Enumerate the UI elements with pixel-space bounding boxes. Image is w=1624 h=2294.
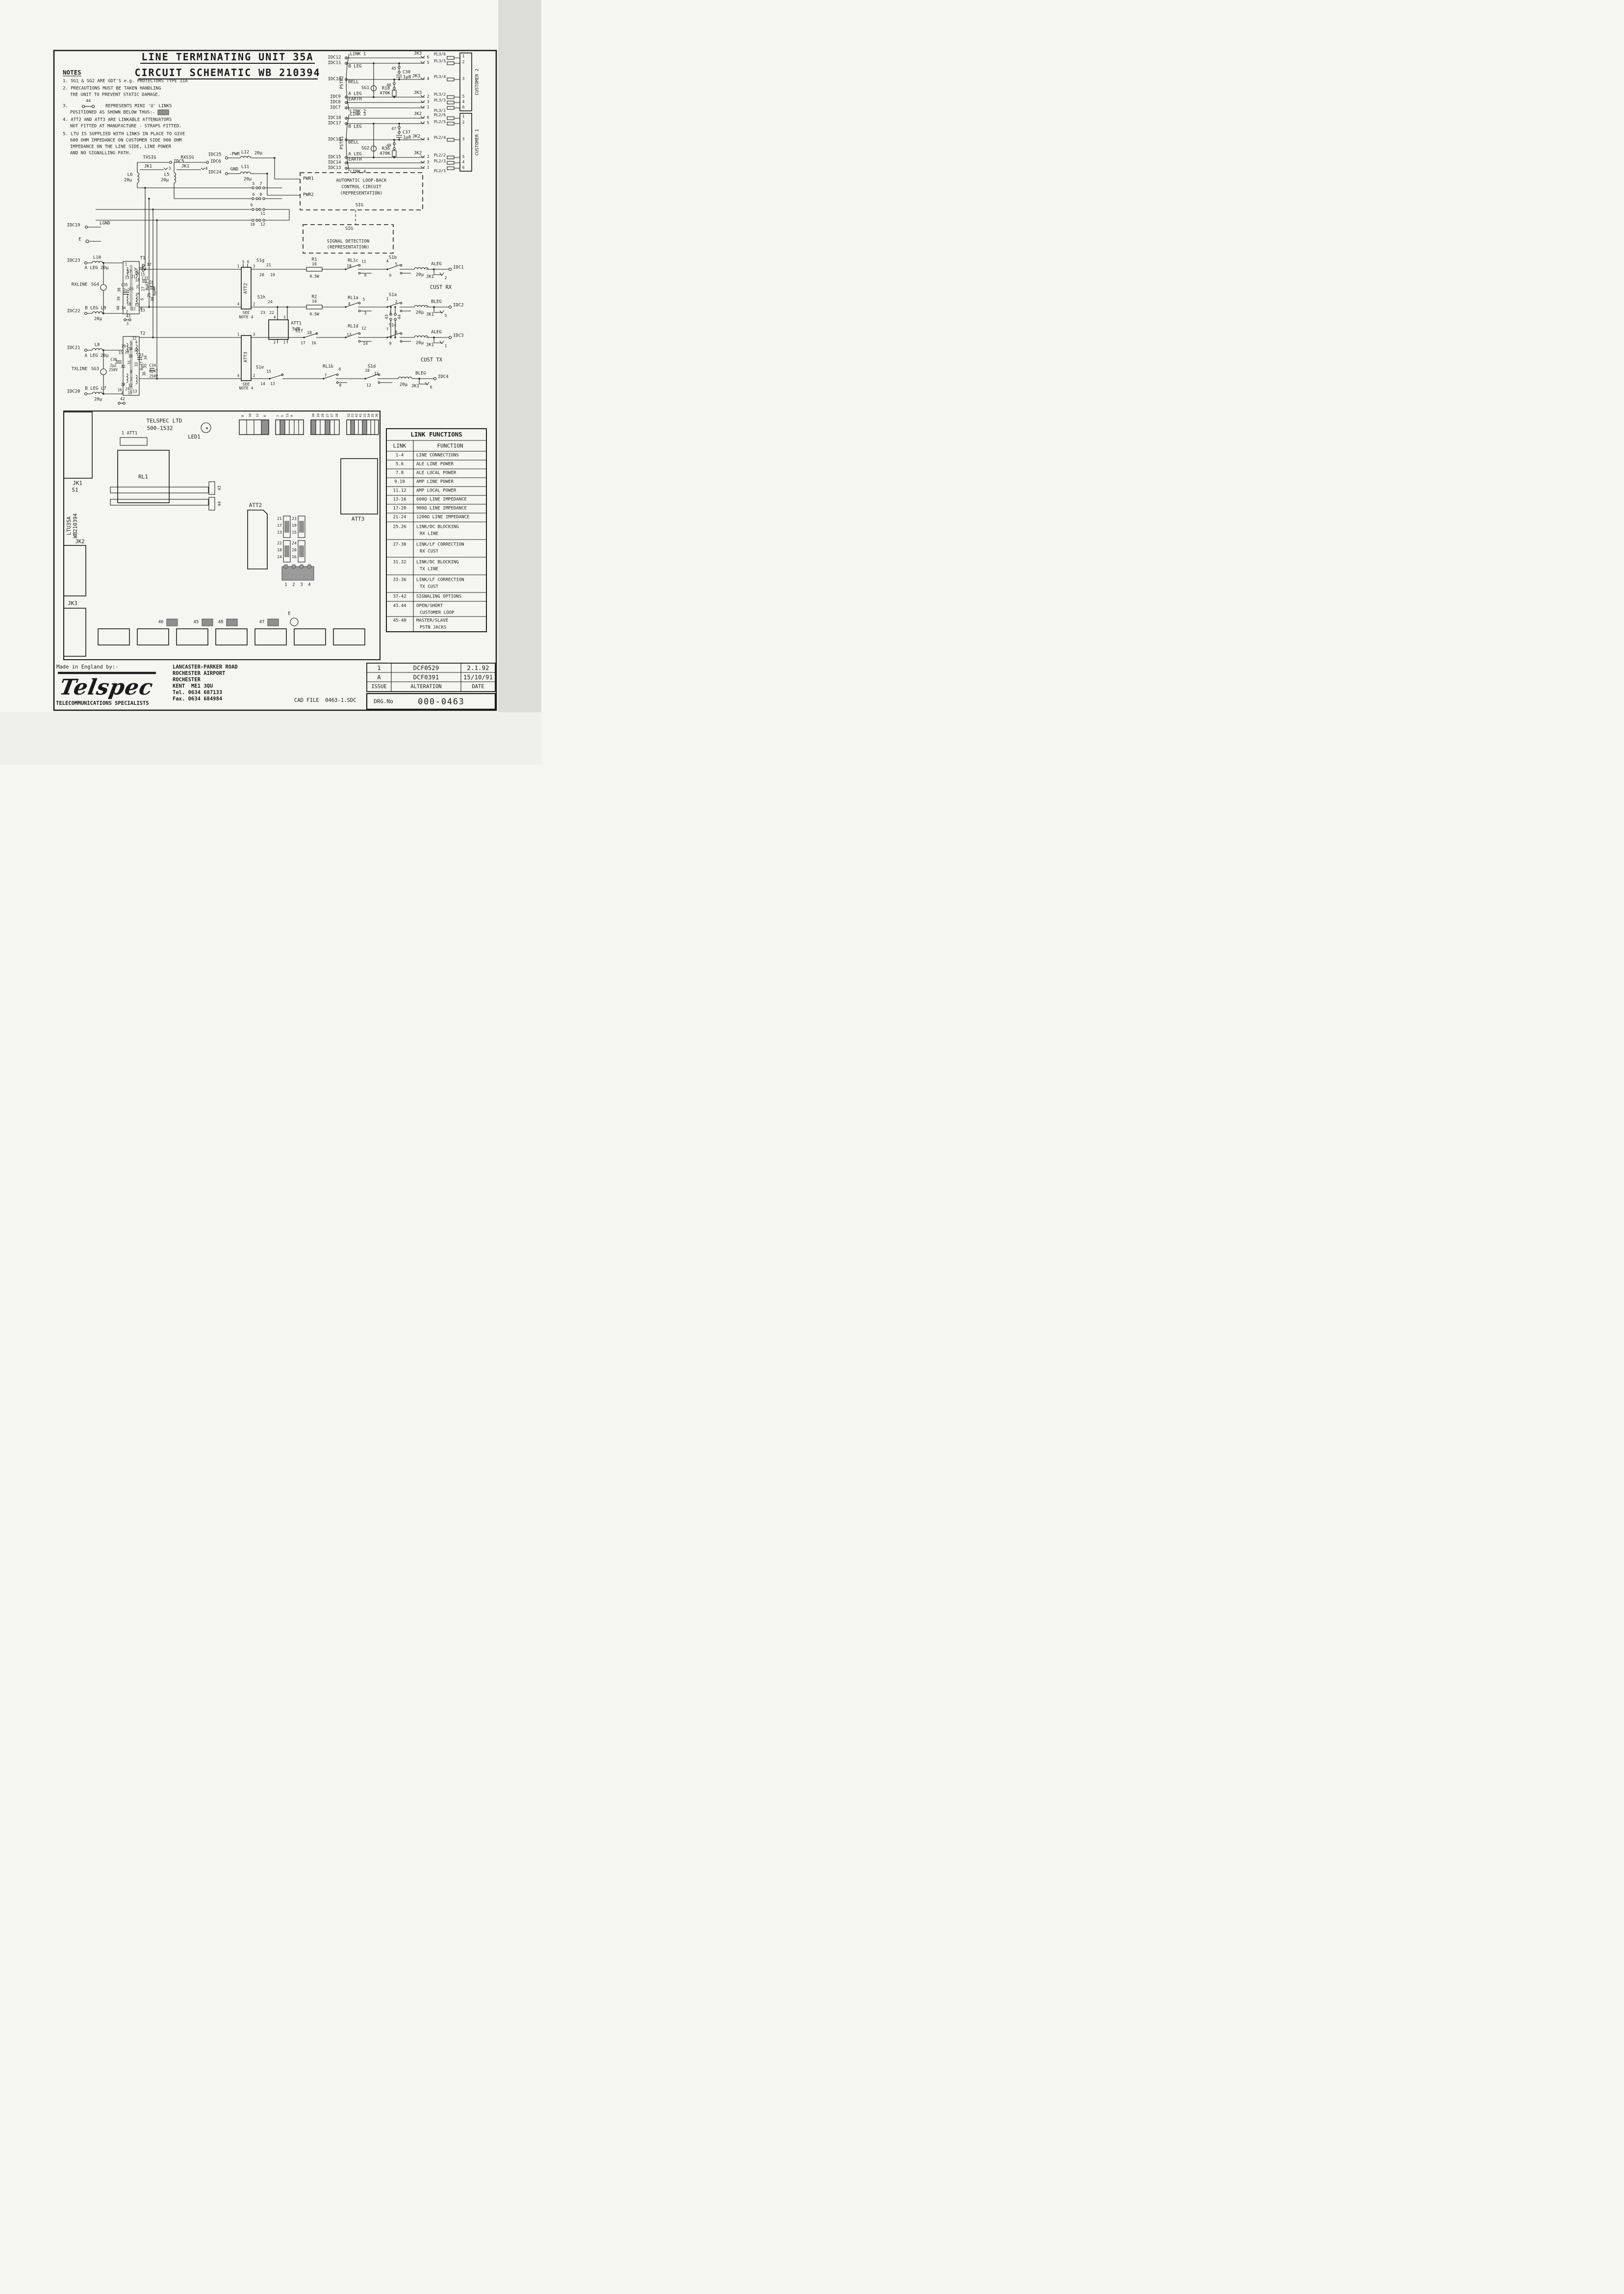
link8-number: 8 <box>260 193 262 197</box>
fn-cell: AMP LOCAL POWER <box>416 489 456 493</box>
idc9-label: IDC9 <box>330 95 341 100</box>
strip1-num: 6 <box>263 415 267 417</box>
link-table-col1: LINK <box>393 443 406 449</box>
s1f-pin: 16 <box>311 341 316 345</box>
link33-number: 33 <box>134 362 138 366</box>
loopback-line1: AUTOMATIC LOOP-BACK <box>336 179 387 183</box>
dip-pin: 4 <box>308 583 310 588</box>
cust2-pin: 1 <box>462 54 465 58</box>
att2-link: 17 <box>277 524 282 528</box>
strip1-num: 12 <box>256 413 259 417</box>
c37-label: C37 <box>403 131 410 135</box>
idc12-label: IDC12 <box>328 56 341 60</box>
s1e-pin: 15 <box>266 370 271 374</box>
link26-number: 26 <box>129 287 133 291</box>
t2-pin: 3 <box>127 322 129 326</box>
att2-pin: 5 <box>242 260 245 264</box>
s1-label: S1 <box>72 488 78 493</box>
att1-pin: 3 <box>283 315 286 319</box>
pwr1-label: PWR1 <box>303 177 314 181</box>
link30-number: 30 <box>151 297 154 301</box>
jk2-pin: 4 <box>427 137 430 141</box>
rl1-label: RL1 <box>138 474 148 480</box>
rl1c-pin: 10 <box>347 264 352 268</box>
fn-cell: 600Ω LINE IMPEDANCE <box>416 498 467 502</box>
pl-label: PL3/3 <box>434 99 446 103</box>
t1-pin: 13 <box>125 276 129 280</box>
strip3-num: 38 <box>335 413 339 417</box>
t2-pin: 10 <box>127 391 132 395</box>
board-wb-label: WB210394 <box>73 514 78 539</box>
address-fax: Fax. 0634 684984 <box>173 696 222 702</box>
link-cell: 37-42 <box>393 595 406 599</box>
s1d-pin: 10 <box>365 369 370 373</box>
link-cell: 1-4 <box>396 454 404 458</box>
idc24-label: IDC24 <box>208 171 221 175</box>
fn-cell: LINK/LF CORRECTION <box>416 543 464 547</box>
board-jk1-label: JK1 <box>73 481 82 486</box>
att2-pin: 6 <box>247 260 250 264</box>
note-5c: IMPEDANCE ON THE LINE SIDE, LINE POWER <box>70 145 171 150</box>
strip4-num: 36 <box>375 413 379 417</box>
link-cell: 17-20 <box>393 507 406 511</box>
c34-label: C34 <box>149 363 156 367</box>
jk1-pin2: 2 <box>445 276 447 280</box>
jk2-pin: 2 <box>427 155 430 159</box>
att3-label: ATT3 <box>244 352 249 362</box>
strip3-num: 29 <box>317 413 320 417</box>
led1-label: LED1 <box>188 435 200 440</box>
jk1-label: JK1 <box>411 385 419 389</box>
t2-pin: 18 <box>128 354 132 358</box>
t1-pin: 2 <box>126 310 128 314</box>
link-cell: 31.32 <box>393 561 406 565</box>
c34-value: 0µ47 <box>149 369 158 373</box>
fn-cell: LINK/DC BLOCKING <box>416 561 459 565</box>
rl1c-label: RL1c <box>348 259 358 263</box>
s1h-pin: 24 <box>268 300 273 304</box>
fn-cell: LINE CONNECTIONS <box>416 454 459 458</box>
note-3c: POSITIONED AS SHOWN BELOW THUS:- <box>70 111 155 115</box>
c35-label: C35 <box>121 283 128 287</box>
board-link43: 43 <box>218 486 222 490</box>
pl-label: PL3/4 <box>434 75 446 79</box>
jk1-pin5: 5 <box>445 314 447 318</box>
address-line: LANCASTER-PARKER ROAD <box>173 665 238 670</box>
address-phone: Tel. 0634 687133 <box>173 690 222 696</box>
bleg-label: BLEG <box>431 300 442 305</box>
rl1b-label: RL1b <box>323 365 333 369</box>
jk2-pin: 5 <box>427 121 430 125</box>
att2-note4: NOTE 4 <box>239 315 254 319</box>
fn-cell: MASTER/SLAVE <box>416 619 448 623</box>
l12-label: L12 <box>241 151 249 155</box>
s1d-pin: 11 <box>374 372 379 376</box>
date-header: DATE <box>472 684 484 690</box>
s1g-label: S1g <box>256 259 264 263</box>
dip-pin: 2 <box>292 583 295 588</box>
rl1b-pin: 7 <box>325 374 327 378</box>
pl-label: PL3/6 <box>434 52 446 56</box>
c30-value: 1µ8 <box>403 76 411 80</box>
idc25-label: IDC25 <box>208 153 221 157</box>
rl1a-pin: 4 <box>348 302 351 306</box>
jk2-pin: 6 <box>427 116 430 120</box>
idc6-label: IDC6 <box>210 160 221 164</box>
idc4-label: IDC4 <box>438 375 449 380</box>
rl1a-label: RL1a <box>348 296 358 301</box>
jk1-pin3: 3 <box>169 167 171 171</box>
att3-pin: 2 <box>253 374 255 378</box>
t1-pin: 1 <box>125 262 127 266</box>
t2-pin: 3 <box>130 342 133 346</box>
l6-value: 20µ <box>124 179 132 183</box>
r1-value: 10 <box>312 262 317 266</box>
fn-cell2: PSTN JACKS <box>420 626 446 630</box>
s1c-pin: 7 <box>386 328 389 332</box>
att3-pin: 3 <box>253 333 255 336</box>
note-5b: 600 OHM IMPEDANCE ON CUSTOMER SIDE 900 O… <box>70 139 182 143</box>
fn-cell2: RX LINE <box>420 532 438 537</box>
strip3-num: 30 <box>312 413 315 417</box>
fn-cell: AMP LINE POWER <box>416 480 454 485</box>
bleg-label: BLEG <box>415 372 426 376</box>
link4-label: LINK 4 <box>350 170 366 175</box>
link40-number: 40 <box>116 306 120 310</box>
pl-label: PL3/5 <box>434 59 446 63</box>
link35-number: 35 <box>143 363 147 368</box>
doc-title-line1: LINE TERMINATING UNIT 35A <box>141 52 313 62</box>
rl1d-pin: 14 <box>363 342 368 346</box>
strip3-num: 27 <box>326 413 330 417</box>
drg-no-value: 000-0463 <box>418 698 464 706</box>
link-table-col2: FUNCTION <box>437 443 463 449</box>
link7-number: 7 <box>260 182 262 186</box>
date-2: 15/10/91 <box>463 674 493 681</box>
rl1d-label: RL1d <box>348 325 358 329</box>
idc14-label: IDC14 <box>328 161 341 165</box>
s1e-label: S1e <box>256 366 264 370</box>
alteration-2: DCF0391 <box>413 674 439 681</box>
board-link46: 46 <box>158 620 164 625</box>
t1-label: T1 <box>140 257 146 261</box>
address-line: ROCHESTER <box>173 677 201 683</box>
idc1-label: IDC1 <box>453 266 464 270</box>
sg3-label: SG3 <box>91 367 99 372</box>
sg4-label: SG4 <box>91 283 99 287</box>
strip4-num: 42 <box>355 413 358 417</box>
l3-value: 20µ <box>416 311 424 315</box>
link9-number: 9 <box>251 204 253 207</box>
board-part-number: 500-1532 <box>147 426 173 431</box>
s1h-pin: 23 <box>260 311 265 315</box>
cust1-pin: 6 <box>462 166 465 170</box>
link-cell: 33-36 <box>393 578 406 583</box>
strip4-num: 32 <box>347 413 351 417</box>
telspec-tagline: TELECOMMUNICATIONS SPECIALISTS <box>56 701 149 706</box>
jk3-pin: 2 <box>427 95 430 99</box>
cust2-pin: 2 <box>462 60 465 64</box>
t2-pin: 20 <box>121 383 125 387</box>
l7-value: 20µ <box>94 398 102 402</box>
l10-label: L10 <box>93 256 101 260</box>
link25-number: 25 <box>136 284 140 289</box>
c31-value: 0µ47 <box>145 282 149 290</box>
jk1-label: JK1 <box>426 313 434 317</box>
note-1: 1. SG1 & SG2 ARE GDT'S e.g. PROTECTORS T… <box>63 79 188 84</box>
note-2a: 2. PRECAUTIONS MUST BE TAKEN HANDLING <box>63 87 161 91</box>
board-att2-label: ATT2 <box>249 503 262 508</box>
link34-number: 34 <box>144 355 148 360</box>
fn-cell: SIGNALING OPTIONS <box>416 595 461 599</box>
l11-label: L11 <box>241 165 249 170</box>
att2-link: 20 <box>292 548 297 552</box>
idc23-label: IDC23 <box>67 259 80 263</box>
s1g-pin: 20 <box>259 273 264 277</box>
date-1: 2.1.92 <box>467 665 489 671</box>
s1f-pin: 17 <box>301 341 305 345</box>
board-maker: TELSPEC LTD <box>147 418 182 424</box>
jk3-pin: 1 <box>427 105 430 109</box>
loopback-line3: (REPRESENTATION) <box>340 192 383 196</box>
strip4-num: 31 <box>351 413 355 417</box>
strip1-num: 8 <box>241 415 245 417</box>
fn-cell: ALE LINE POWER <box>416 463 454 467</box>
att1-pin: 2 <box>274 340 276 344</box>
link-cell: 25.26 <box>393 525 406 530</box>
l11-value: 20µ <box>244 178 252 182</box>
jk3-pin: 6 <box>427 55 430 59</box>
pl-label: PL3/2 <box>434 93 446 97</box>
idc19-label: IDC19 <box>67 224 80 228</box>
t1-pin: 13 <box>140 309 145 312</box>
idc18-label: IDC18 <box>328 116 341 121</box>
link-cell: 43.44 <box>393 604 406 609</box>
c31-label: C31 <box>142 276 149 280</box>
att2-link: 23 <box>292 517 297 521</box>
board-ltu-label: LTU35A <box>67 516 72 535</box>
board-jk2-label: JK2 <box>75 539 85 544</box>
s1g-pin: 21 <box>266 263 271 267</box>
idc7-label: IDC7 <box>330 106 341 110</box>
c30-label: C30 <box>403 71 410 75</box>
fn-cell: LINK/LF CORRECTION <box>416 578 464 583</box>
pwr2-label: PWR2 <box>303 193 314 198</box>
cust2-pin: 6 <box>462 105 465 109</box>
note-5a: 5. LTU IS SUPPLIED WITH LINKS IN PLACE T… <box>63 132 185 137</box>
board-link48: 48 <box>218 620 224 625</box>
att2-link: 14 <box>277 555 282 559</box>
idc8-label: IDC8 <box>330 101 341 105</box>
cust2-pin: 3 <box>462 77 465 81</box>
issue-1: 1 <box>377 665 381 671</box>
att2-link: 16 <box>292 555 297 559</box>
cust-rx-label: CUST RX <box>430 285 452 290</box>
note-5d: AND NO SIGNALLING PATH. <box>70 152 131 156</box>
strip2-num: 5 <box>281 415 284 417</box>
att2-see: SEE <box>243 311 250 315</box>
link-cell: 13-16 <box>393 498 406 502</box>
rl1b-pin: 6 <box>339 367 341 371</box>
t1-pin: 6 <box>140 298 144 301</box>
jk1-label: JK1 <box>181 165 189 169</box>
r2-wattage: 0.5W <box>309 312 319 316</box>
board-link44: 44 <box>218 501 222 506</box>
fn-cell: OPEN/SHORT <box>416 604 443 609</box>
dip-pin: 1 <box>284 583 287 588</box>
cust1-pin: 1 <box>462 115 465 119</box>
s1h-pin: 22 <box>269 311 274 315</box>
cust-tx-label: CUST TX <box>421 358 442 363</box>
att2-link: 24 <box>292 541 297 545</box>
jk3-label-b: JK3 <box>412 75 420 79</box>
s1a-pin: 2 <box>395 300 398 304</box>
jk3-label-a: JK3 <box>414 52 422 56</box>
note-3b: REPRESENTS MINI 'U' LINKS <box>105 104 172 109</box>
rl1d-pin: 13 <box>347 333 352 337</box>
rxsig-label: RXSIG <box>180 156 194 160</box>
pl-label: PL2/2 <box>434 154 446 157</box>
aleg-label: ALEG <box>431 331 442 335</box>
t2-pin: 4 <box>135 340 138 344</box>
link12-number: 12 <box>260 223 265 227</box>
jk1-label: JK1 <box>426 343 434 348</box>
jk1-label: JK1 <box>426 275 434 280</box>
rl1d-pin: 12 <box>361 327 366 331</box>
jk2-label-c: JK2 <box>414 152 422 156</box>
link1-label: LINK 1 <box>350 52 366 57</box>
rl1a-pin: 3 <box>364 311 367 315</box>
aleg1-label: A LEG <box>348 153 361 157</box>
made-in-england: Made in England by:- <box>56 665 118 670</box>
att3-pin: 1 <box>237 333 240 336</box>
s1b-pin: 5 <box>395 262 398 266</box>
bleg2-label: B LEG <box>348 65 361 69</box>
idc20-label: IDC20 <box>67 390 80 394</box>
strip1-num: 10 <box>249 413 252 417</box>
r2-value: 10 <box>312 300 317 304</box>
alteration-1: DCF0529 <box>413 665 439 671</box>
t1-pin: 17 <box>127 270 131 274</box>
c36-value: 2µ2 <box>110 363 117 367</box>
address-line: ROCHESTER AIRPORT <box>173 671 225 676</box>
alteration-header: ALTERATION <box>410 684 441 690</box>
idc21-label: IDC21 <box>67 346 80 351</box>
t1-pin: 18 <box>135 278 139 282</box>
strip2-num: 9 <box>290 415 294 417</box>
s1b-pin: 6 <box>389 274 392 278</box>
jk3-pin: 4 <box>427 77 430 81</box>
t1-pin: 4 <box>141 266 144 270</box>
l9-value: 20µ <box>94 317 102 322</box>
idc17-label: IDC17 <box>328 122 341 126</box>
earth2-label: EARTH <box>348 98 361 102</box>
att2-pin: 4 <box>237 302 240 306</box>
txsig-label: TXSIG <box>143 156 156 160</box>
r18-label: R18 <box>382 87 390 91</box>
cust1-pin: 2 <box>462 121 465 125</box>
t2-label: T2 <box>140 332 146 336</box>
att3-pin: 4 <box>237 374 240 378</box>
pl-label: PL2/1 <box>434 169 446 173</box>
sigdet-line2: (REPRESENTATION) <box>327 246 370 250</box>
att3-note4: NOTE 4 <box>239 387 254 390</box>
c36-label: C36 <box>110 358 117 361</box>
jk2-pin: 3 <box>427 160 430 164</box>
s1e-pin: 13 <box>270 382 275 386</box>
s1c-pin: 8 <box>395 331 398 335</box>
att2-pin: 1 <box>237 264 240 268</box>
fn-cell2: CUSTOMER LOOP <box>420 611 454 616</box>
bleg-l9-label: B LEG L9 <box>85 307 106 311</box>
jk3-label-c: JK3 <box>414 91 422 96</box>
note-3-link-number: 44 <box>86 99 91 103</box>
bleg-l7-label: B LEG L7 <box>85 387 106 391</box>
att1-pin: 4 <box>274 315 276 319</box>
loopback-line2: CONTROL CIRCUIT <box>341 185 381 190</box>
s1f-label: S1f <box>295 330 303 334</box>
jk3-pin: 3 <box>427 100 430 104</box>
rl1b-pin: 8 <box>339 384 342 387</box>
jk1-label: JK1 <box>144 165 152 169</box>
board-jk3-label: JK3 <box>68 601 77 606</box>
c32-label: C32 <box>150 280 153 287</box>
strip2-num: 7 <box>277 415 280 417</box>
link44-number: 44 <box>398 314 402 319</box>
aleg-20u-label: A LEG 20µ <box>85 266 109 271</box>
s1a-pin: 1 <box>386 297 389 301</box>
s1c-pin: 9 <box>389 342 392 346</box>
t1-pin: 18 <box>127 302 131 306</box>
link10-number: 10 <box>250 223 255 227</box>
earth-e-label: E <box>78 238 81 242</box>
link-cell: 21-24 <box>393 516 406 520</box>
rl1c-pin: 9 <box>364 274 367 278</box>
link45-number: 45 <box>391 67 396 71</box>
t2-pin: 13 <box>132 389 137 393</box>
c36-voltage: 250V <box>109 368 118 372</box>
jk3-pin: 5 <box>427 61 430 65</box>
note-4b: NOT FITTED AT MANUFACTURE - STRAPS FITTE… <box>70 125 182 129</box>
t2-pin: 15 <box>118 351 123 355</box>
fn-cell: 1200Ω LINE IMPEDANCE <box>416 516 469 520</box>
cust2-pin: 4 <box>462 100 465 104</box>
link-table-title: LINK FUNCTIONS <box>410 432 462 438</box>
address-line: KENT ME1 3QU <box>173 684 213 689</box>
pl-label: PL2/3 <box>434 159 446 163</box>
fn-cell: 900Ω LINE IMPEDANCE <box>416 507 467 511</box>
txline-label: TXLINE <box>72 367 88 372</box>
s1e-pin: 14 <box>260 382 265 386</box>
att1-label: ATT1 <box>291 322 302 326</box>
t1-pin: 14 <box>121 306 126 310</box>
notes-heading: NOTES <box>63 70 81 76</box>
idc2-label: IDC2 <box>453 304 464 308</box>
strip4-num: 41 <box>359 413 362 417</box>
strip4-num: 35 <box>371 413 375 417</box>
board-e-label: E <box>288 612 290 617</box>
idc15-label: IDC15 <box>328 155 341 160</box>
idc22-label: IDC22 <box>67 309 80 314</box>
link-cell: 45-48 <box>393 619 406 623</box>
link3-label: LINK 3 <box>350 113 366 117</box>
cad-file-label: CAD FILE 0463-1.SDC <box>294 698 356 703</box>
cust1-pin: 4 <box>462 160 465 164</box>
att2-link: 21 <box>277 517 282 521</box>
s1c-label: S1c <box>389 324 397 328</box>
customer2-label: CUSTOMER 2 <box>476 69 480 95</box>
board-att3-label: ATT3 <box>352 516 365 522</box>
